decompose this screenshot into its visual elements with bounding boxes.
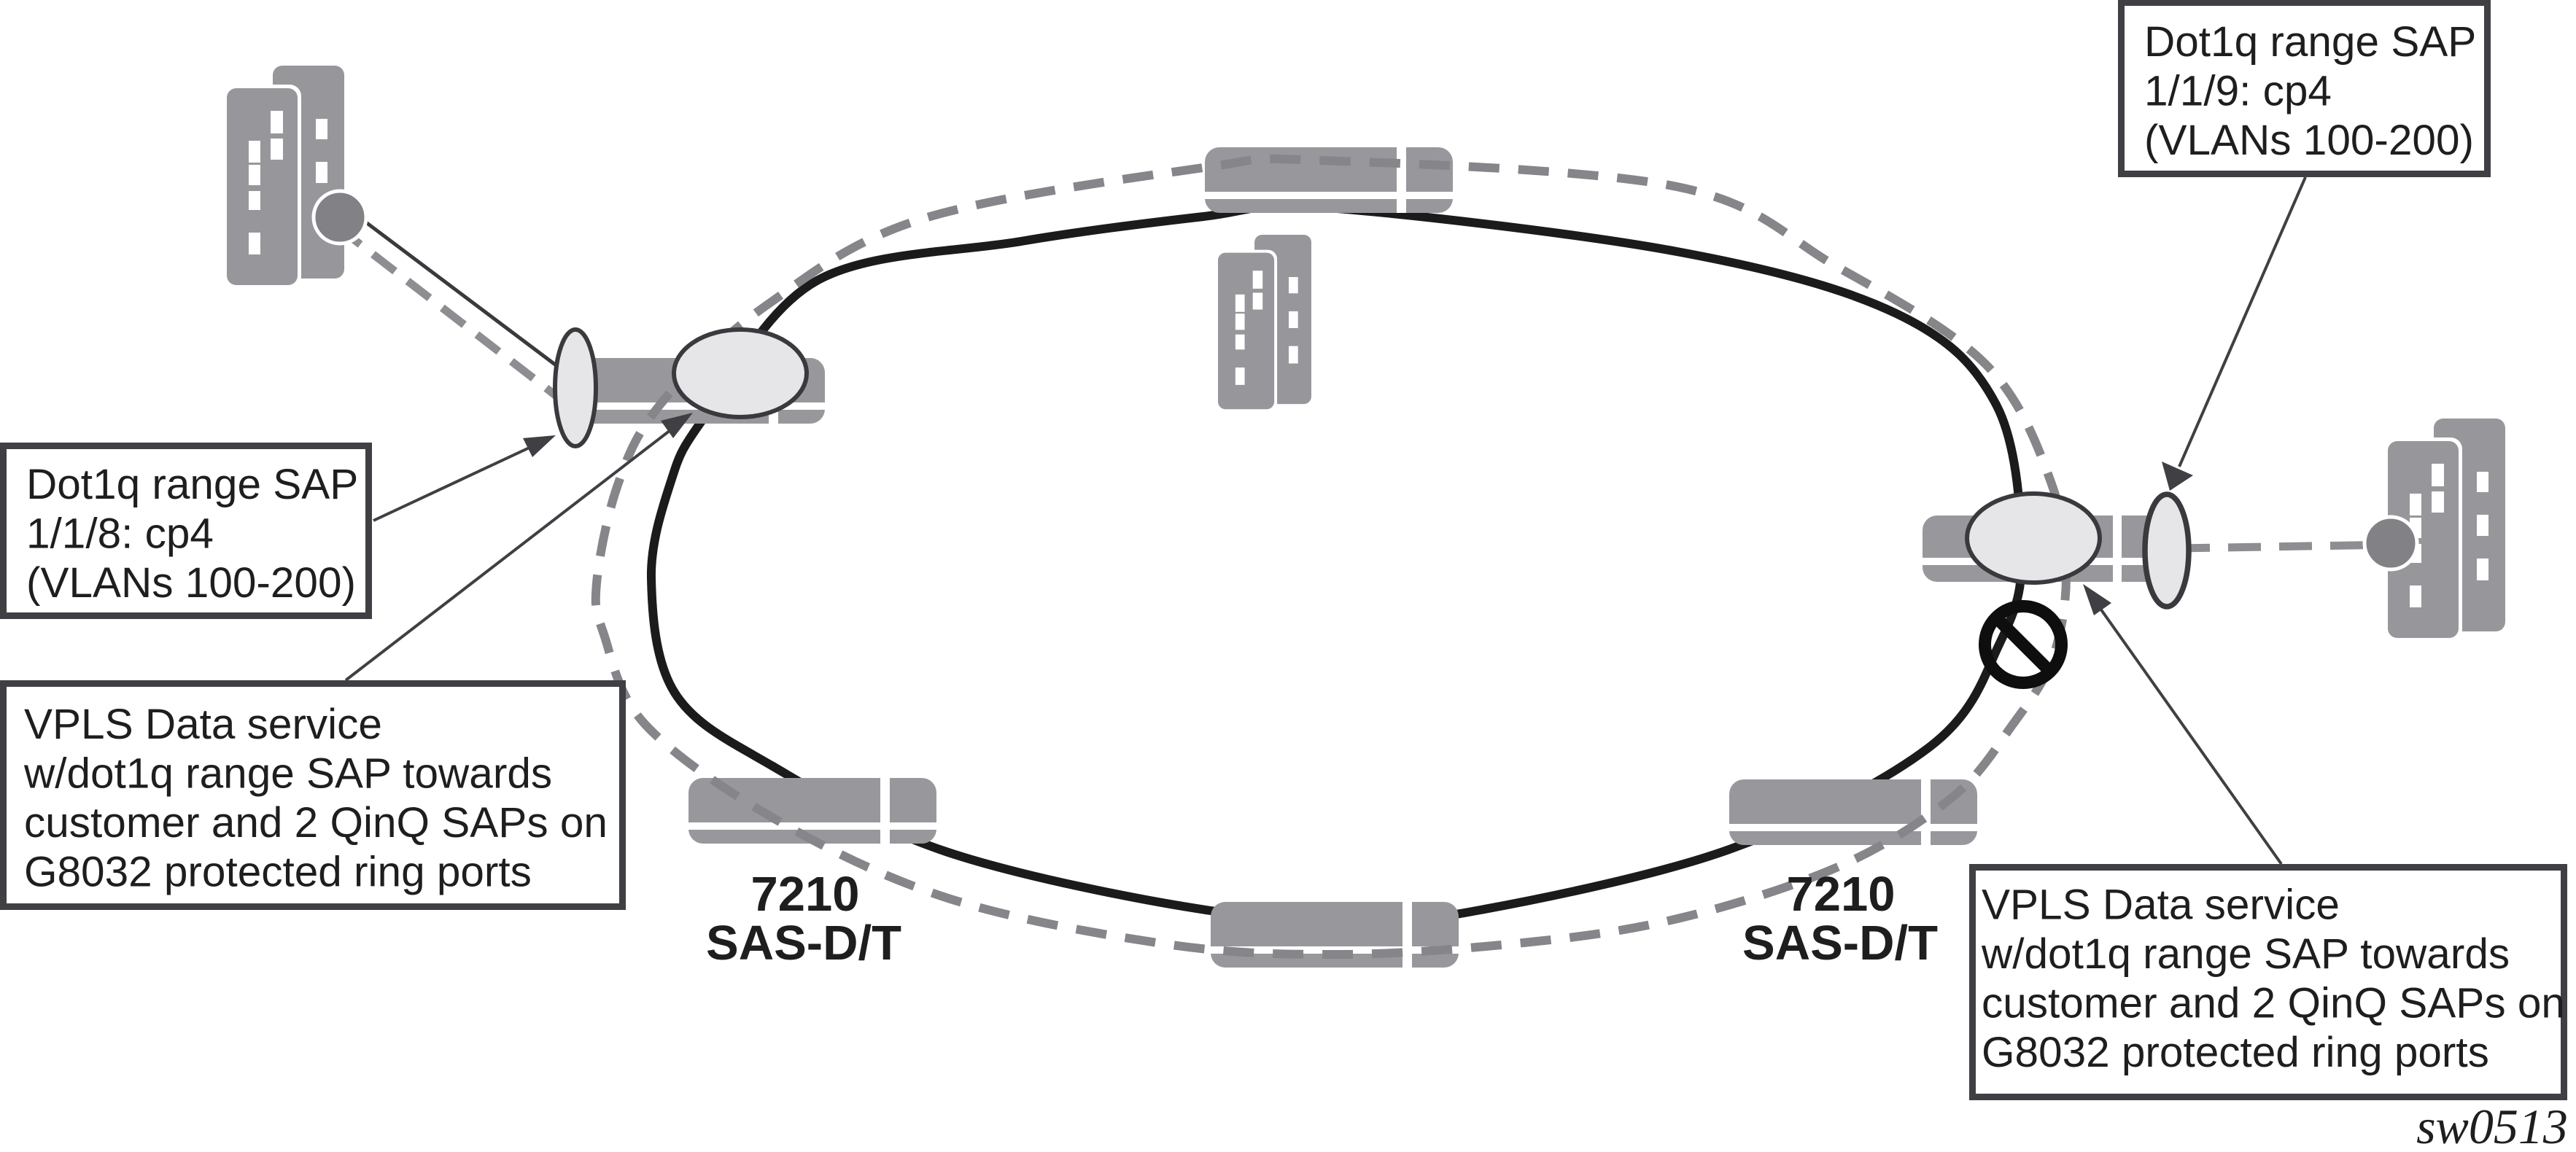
svg-text:(VLANs 100-200): (VLANs 100-200) <box>2144 117 2474 164</box>
svg-text:(VLANs 100-200): (VLANs 100-200) <box>26 559 356 607</box>
svg-text:SAS-D/T: SAS-D/T <box>706 916 901 970</box>
svg-text:G8032 protected ring ports: G8032 protected ring ports <box>1982 1029 2489 1076</box>
svg-text:Dot1q range SAP: Dot1q range SAP <box>2144 18 2476 66</box>
svg-text:Dot1q range SAP: Dot1q range SAP <box>26 461 358 508</box>
svg-text:1/1/9: cp4: 1/1/9: cp4 <box>2144 68 2332 115</box>
svg-text:7210: 7210 <box>750 867 859 922</box>
svg-text:VPLS Data service: VPLS Data service <box>24 701 382 748</box>
svg-text:w/dot1q range SAP towards: w/dot1q range SAP towards <box>23 750 552 798</box>
svg-text:w/dot1q range SAP towards: w/dot1q range SAP towards <box>1981 930 2510 978</box>
svg-text:customer and 2 QinQ SAPs on: customer and 2 QinQ SAPs on <box>24 799 608 847</box>
svg-text:SAS-D/T: SAS-D/T <box>1742 916 1938 970</box>
svg-text:VPLS Data service: VPLS Data service <box>1982 881 2340 929</box>
svg-text:G8032 protected ring ports: G8032 protected ring ports <box>24 849 532 896</box>
svg-text:7210: 7210 <box>1786 867 1895 922</box>
svg-text:1/1/8: cp4: 1/1/8: cp4 <box>26 510 214 558</box>
svg-text:sw0513: sw0513 <box>2416 1099 2568 1152</box>
svg-text:customer and 2 QinQ SAPs on: customer and 2 QinQ SAPs on <box>1982 980 2565 1027</box>
